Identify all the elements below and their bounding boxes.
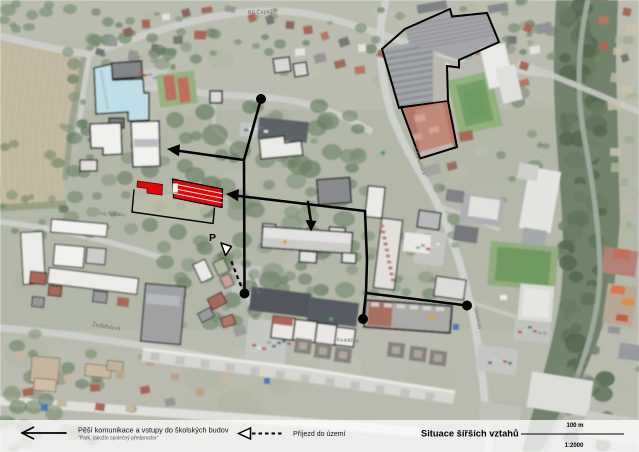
svg-text:Pěší komunikace a vstupy do šk: Pěší komunikace a vstupy do školských bu… xyxy=(78,426,229,435)
svg-text:Bří Čapků: Bří Čapků xyxy=(248,8,273,16)
svg-text:Na Špičáku: Na Špičáku xyxy=(100,210,126,218)
svg-text:100 m: 100 m xyxy=(566,423,583,429)
svg-text:1:2000: 1:2000 xyxy=(565,443,584,449)
svg-text:Situace šířších vztahů: Situace šířších vztahů xyxy=(421,429,519,439)
svg-text:Příjezd do území: Příjezd do území xyxy=(293,431,346,438)
svg-text:"Park, jakožto společný předpr: "Park, jakožto společný předprostor" xyxy=(78,436,159,442)
svg-text:P: P xyxy=(209,232,216,244)
